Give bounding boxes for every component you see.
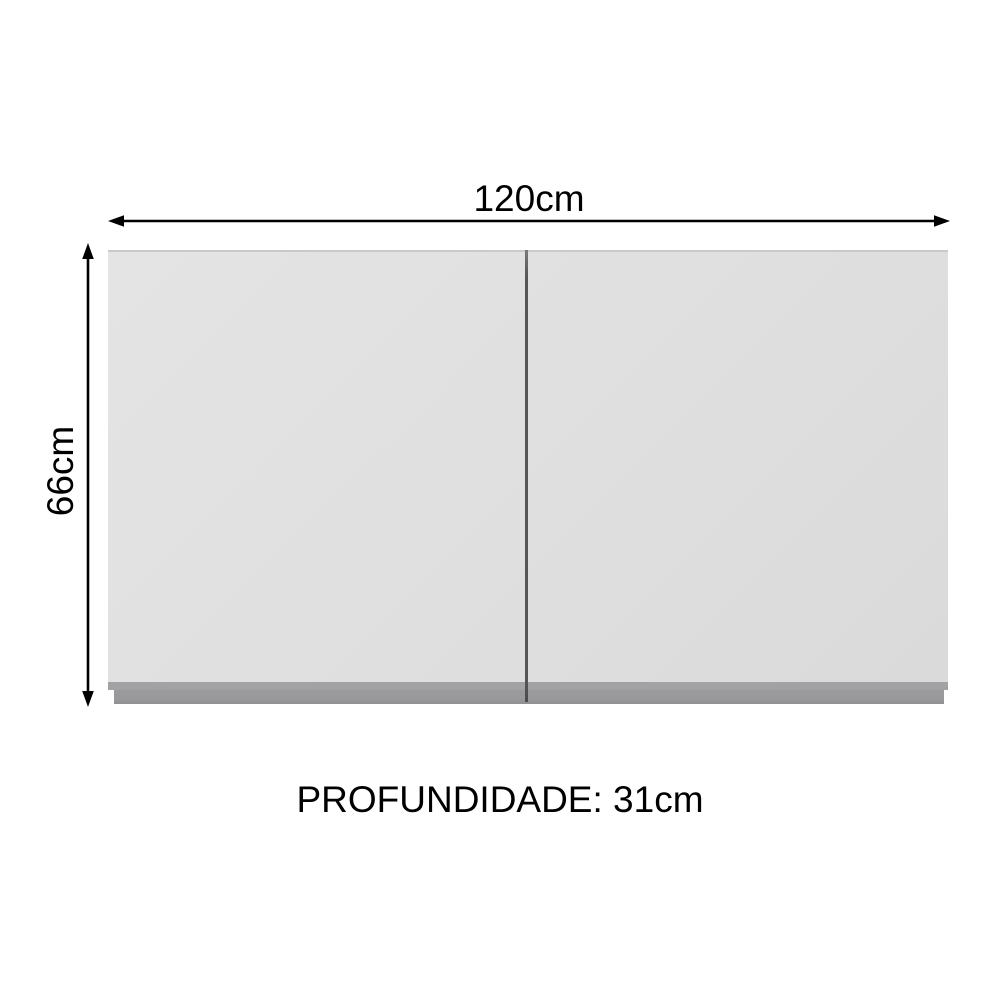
dimension-diagram: 120cm 66cm PROFUNDIDADE: 31cm xyxy=(0,0,1000,1000)
depth-dimension-label: PROFUNDIDADE: 31cm xyxy=(0,781,1000,818)
width-dimension-arrow xyxy=(108,211,950,231)
cabinet-doors-panel xyxy=(108,250,948,682)
cabinet-left-door xyxy=(108,252,525,684)
cabinet-front-view xyxy=(108,250,948,704)
cabinet-door-gap-line xyxy=(525,250,528,702)
height-dimension-arrow xyxy=(78,243,98,707)
cabinet-right-door xyxy=(528,252,949,684)
cabinet-base xyxy=(114,690,944,704)
cabinet-base-top-edge xyxy=(108,682,948,690)
height-dimension-label: 66cm xyxy=(41,411,81,531)
